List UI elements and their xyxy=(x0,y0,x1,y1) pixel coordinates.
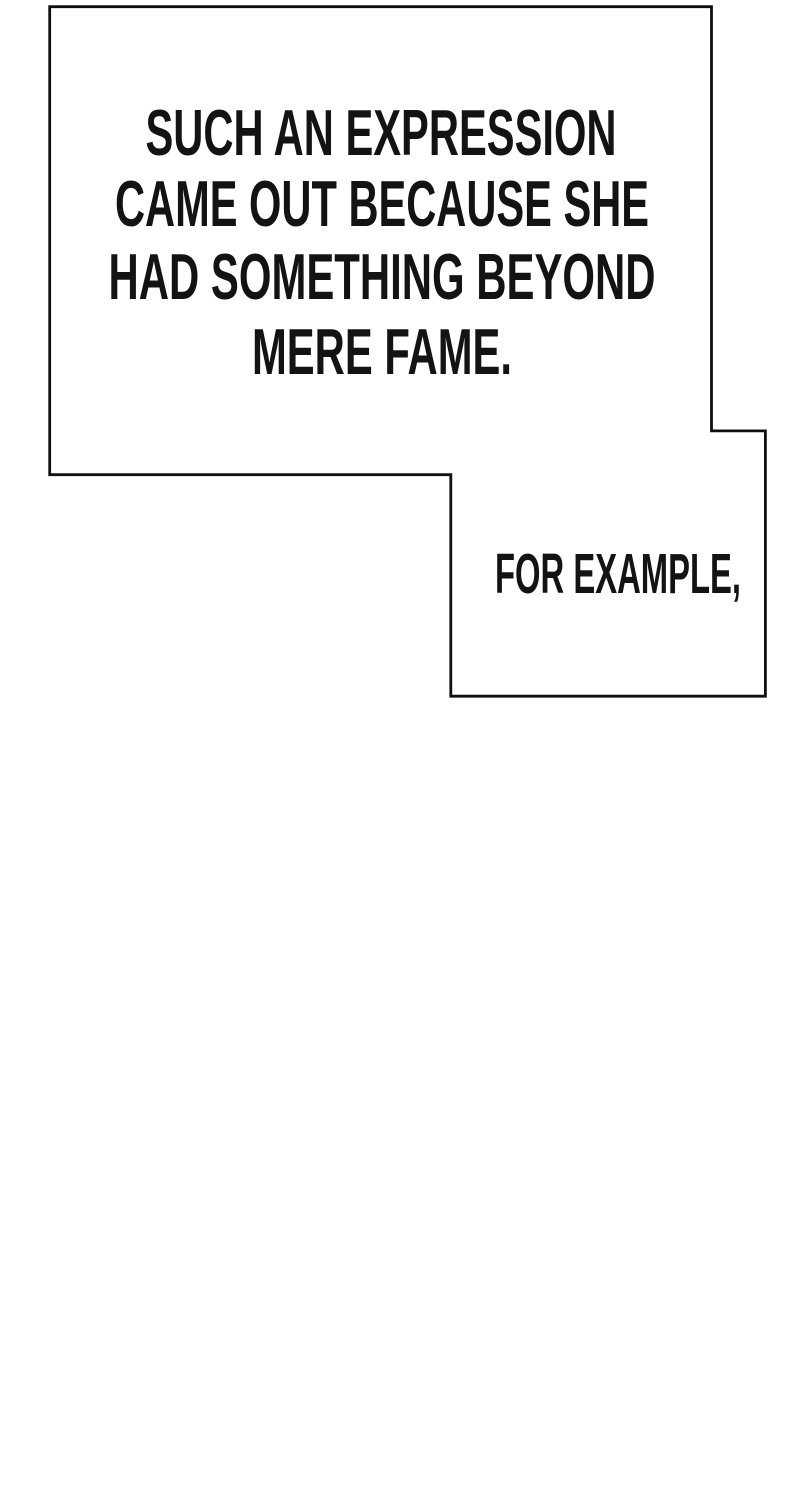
svg-text:SUCH AN EXPRESSION: SUCH AN EXPRESSION xyxy=(146,96,617,169)
svg-text:MERE FAME.: MERE FAME. xyxy=(252,315,512,388)
svg-text:CAME OUT BECAUSE SHE: CAME OUT BECAUSE SHE xyxy=(115,167,649,240)
svg-text:FOR EXAMPLE,: FOR EXAMPLE, xyxy=(495,542,741,606)
svg-text:HAD SOMETHING BEYOND: HAD SOMETHING BEYOND xyxy=(109,240,656,313)
